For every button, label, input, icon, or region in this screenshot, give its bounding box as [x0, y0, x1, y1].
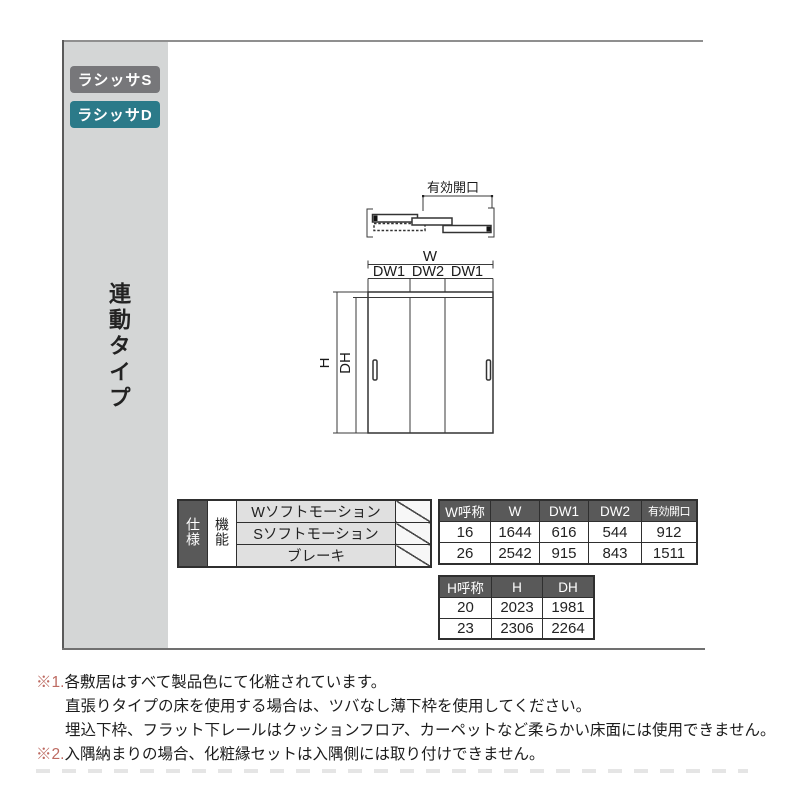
table-cell: 2023: [492, 598, 543, 619]
note-line: 直張りタイプの床を使用する場合は、ツバなし薄下枠を使用してください。: [36, 695, 776, 719]
spec-table: 仕様 機能 Wソフトモーション Sソフトモーション ブレーキ: [177, 499, 432, 568]
dw2-label: DW2: [412, 264, 444, 280]
table-cell: 544: [589, 522, 642, 543]
sidebar: ラシッサS ラシッサD 連動タイプ: [64, 42, 168, 648]
footnotes: ※1.各敷居はすべて製品色にて化粧されています。 直張りタイプの床を使用する場合…: [36, 671, 776, 767]
note-marker: ※2.: [36, 746, 64, 763]
elevation-diagram: W DW1 DW2 DW1 H DH: [320, 248, 505, 440]
table-cell: 1511: [642, 543, 698, 565]
function-na-cell: [396, 545, 432, 568]
table-cell: 616: [540, 522, 589, 543]
catalog-page: ラシッサS ラシッサD 連動タイプ 有効開口 W DW1 DW2 DW1 H D…: [0, 0, 800, 800]
table-row: 20 2023 1981: [439, 598, 594, 619]
plan-view-diagram: 有効開口: [355, 175, 505, 245]
h-dimension-table: H呼称 H DH 20 2023 1981 23 2306 2264: [438, 575, 595, 640]
table-cell: 2306: [492, 618, 543, 639]
function-name-cell: Sソフトモーション: [237, 523, 396, 545]
table-cell: 26: [439, 543, 491, 565]
note-text: 直張りタイプの床を使用する場合は、ツバなし薄下枠を使用してください。: [65, 698, 591, 715]
w-dimension-label: W: [423, 248, 438, 265]
left-door-handle: [373, 360, 377, 380]
table-cell: 1981: [543, 598, 595, 619]
table-cell: 843: [589, 543, 642, 565]
note-text: 各敷居はすべて製品色にて化粧されています。: [64, 674, 386, 691]
series-type-label: 連動タイプ: [102, 282, 134, 412]
column-header: DW1: [540, 500, 589, 522]
column-header: DW2: [589, 500, 642, 522]
table-cell: 20: [439, 598, 492, 619]
tab-lasissa-s[interactable]: ラシッサS: [70, 66, 160, 93]
table-cell: 16: [439, 522, 491, 543]
column-header: H呼称: [439, 576, 492, 598]
door-frame: [368, 292, 493, 433]
table-cell: 2542: [491, 543, 540, 565]
note-line: 埋込下枠、フラット下レールはクッションフロア、カーペットなど柔らかい床面には使用…: [36, 719, 776, 743]
left-jamb: [367, 209, 373, 237]
column-header: DH: [543, 576, 595, 598]
column-header: W: [491, 500, 540, 522]
door-panel-middle: [412, 218, 452, 225]
faded-cutoff-text: [36, 769, 748, 773]
note-line: ※2.入隅納まりの場合、化粧縁セットは入隅側には取り付けできません。: [36, 743, 776, 767]
spec-header-cell: 仕様: [178, 500, 208, 567]
opening-dimension-label: 有効開口: [427, 180, 479, 195]
left-divider: [62, 40, 64, 650]
column-header: H: [492, 576, 543, 598]
column-header: 有効開口: [642, 500, 698, 522]
door-panel-left: [373, 215, 418, 223]
note-text: 埋込下枠、フラット下レールはクッションフロア、カーペットなど柔らかい床面には使用…: [65, 722, 776, 739]
door-panel-right: [443, 226, 491, 233]
function-header-cell: 機能: [208, 500, 237, 567]
tab-lasissa-d[interactable]: ラシッサD: [70, 101, 160, 128]
bottom-divider: [62, 648, 705, 650]
function-name-cell: ブレーキ: [237, 545, 396, 568]
function-na-cell: [396, 523, 432, 545]
column-header: W呼称: [439, 500, 491, 522]
dw1-right-label: DW1: [451, 264, 483, 280]
table-cell: 2264: [543, 618, 595, 639]
table-row: 23 2306 2264: [439, 618, 594, 639]
h-dimension-label: H: [320, 358, 333, 369]
function-name-cell: Wソフトモーション: [237, 500, 396, 523]
note-marker: ※1.: [36, 674, 64, 691]
note-line: ※1.各敷居はすべて製品色にて化粧されています。: [36, 671, 776, 695]
note-text: 入隅納まりの場合、化粧縁セットは入隅側には取り付けできません。: [64, 746, 544, 763]
w-dimension-table: W呼称 W DW1 DW2 有効開口 16 1644 616 544 912 2…: [438, 499, 698, 565]
function-na-cell: [396, 500, 432, 523]
table-row: 16 1644 616 544 912: [439, 522, 697, 543]
dh-dimension-label: DH: [337, 352, 354, 374]
dw1-left-label: DW1: [373, 264, 405, 280]
table-cell: 912: [642, 522, 698, 543]
table-cell: 1644: [491, 522, 540, 543]
table-cell: 23: [439, 618, 492, 639]
right-door-handle: [487, 360, 491, 380]
table-cell: 915: [540, 543, 589, 565]
table-row: 26 2542 915 843 1511: [439, 543, 697, 565]
